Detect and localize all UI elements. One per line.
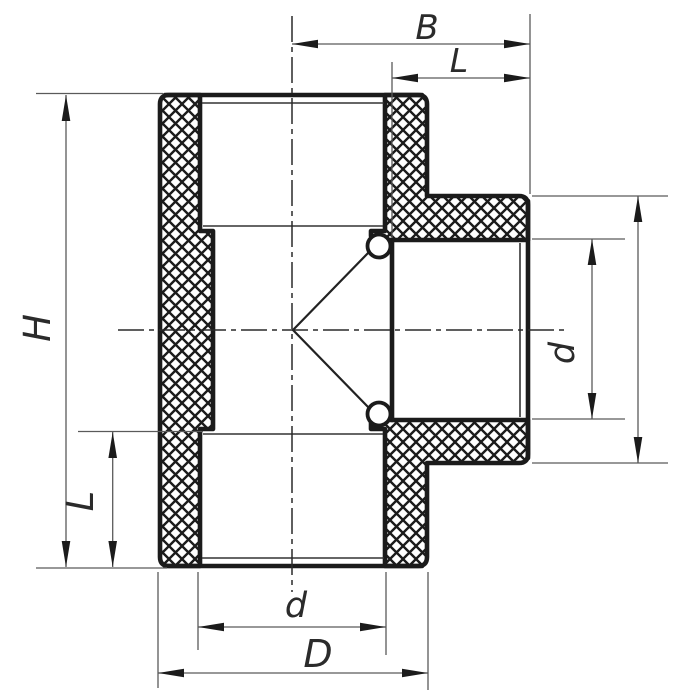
corner-radius-bottom [368,403,391,426]
arrowhead-L-top-right [504,74,530,83]
arrowhead-D-right [402,669,428,678]
arrowhead-d-branch-top [588,239,597,265]
label-L-left: L [59,491,102,512]
hatch-right-bottom-wall [371,420,528,566]
technical-drawing-canvas: B L H L d d [0,0,700,700]
arrowhead-branch-outer-bottom [634,437,643,463]
dimension-B: B [292,8,530,48]
label-L-top: L [450,41,468,80]
arrowhead-L-left-bottom [108,541,117,567]
dimension-d-branch: d [543,239,596,419]
arrowhead-D-left [158,669,184,678]
arrowhead-d-branch-bottom [588,393,597,419]
arrowhead-d-bottom-left [198,623,224,632]
arrowhead-L-top-left [392,74,418,83]
arrowhead-d-bottom-right [360,623,386,632]
corner-radius-top [368,235,391,258]
arrowhead-B-left [292,40,318,49]
arrowhead-H-bottom [62,541,71,567]
label-B: B [415,8,438,48]
label-d-bottom: d [285,586,308,626]
arrowhead-H-top [62,95,71,121]
dimension-branch-outer [634,196,643,463]
hatch-right-top-wall [371,95,528,240]
tee-fitting-drawing: B L H L d d [0,0,700,700]
crotch-line-upper [293,252,369,330]
label-H: H [16,314,59,342]
arrowhead-branch-outer-top [634,196,643,222]
label-D: D [303,632,332,676]
crotch-line-lower [293,330,369,408]
arrowhead-L-left-top [108,432,117,458]
dimension-d-bottom: d [198,586,386,631]
label-d-branch: d [543,341,583,364]
arrowhead-B-right [504,40,530,49]
